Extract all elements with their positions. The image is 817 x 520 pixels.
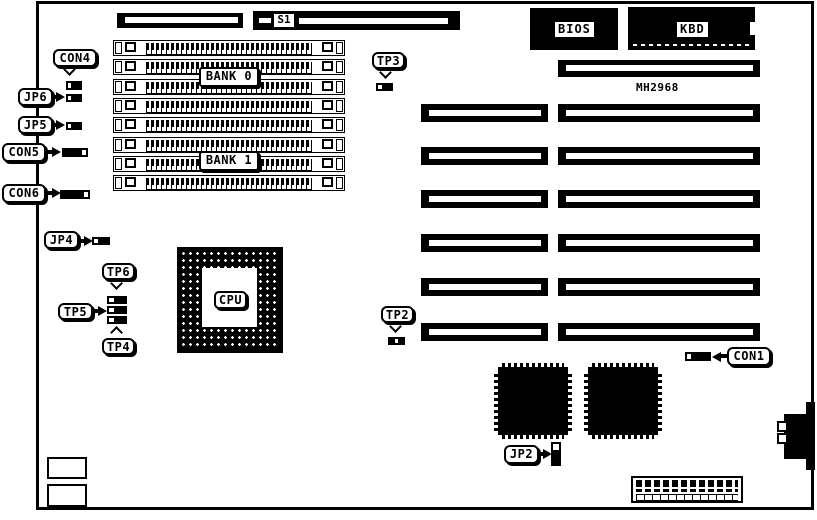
callout-con1: CON1 <box>727 347 771 366</box>
tp5-jumper <box>107 306 127 314</box>
expansion-slot <box>421 234 548 252</box>
jp2-jumper <box>551 442 561 466</box>
qfp-chip <box>588 367 658 435</box>
expansion-slot <box>558 323 760 341</box>
expansion-slot <box>558 278 760 296</box>
callout-jp4: JP4 <box>44 231 79 249</box>
power-connector <box>631 476 743 503</box>
expansion-slot <box>421 104 548 122</box>
board-outline <box>36 1 814 510</box>
callout-tp3: TP3 <box>372 52 405 69</box>
simm-socket <box>113 98 345 114</box>
jp6-jumper <box>66 94 82 102</box>
callout-jp6: JP6 <box>18 88 53 106</box>
component-outline <box>47 457 87 479</box>
bios-chip: BIOS <box>530 8 618 50</box>
callout-tp4: TP4 <box>102 338 135 355</box>
cpu-socket: CPU <box>177 247 283 353</box>
expansion-slot <box>558 190 760 208</box>
tp2-jumper <box>388 337 405 345</box>
callout-con6: CON6 <box>2 184 46 203</box>
expansion-slot <box>421 323 548 341</box>
edge-slot-bar <box>117 13 243 28</box>
simm-socket <box>113 40 345 56</box>
simm-socket <box>113 175 345 191</box>
din-connector-hole <box>777 421 788 432</box>
s1-switch-bar: S1 <box>253 11 460 30</box>
expansion-slot <box>421 278 548 296</box>
con1-header <box>685 352 711 361</box>
expansion-slot <box>421 147 548 165</box>
bios-chip-label: BIOS <box>555 22 594 37</box>
callout-jp5: JP5 <box>18 116 53 134</box>
con4-header <box>66 81 82 90</box>
pointer-icon <box>56 92 65 102</box>
board-model-text: MH2968 <box>636 81 679 94</box>
callout-tp2: TP2 <box>381 306 414 323</box>
tp3-jumper <box>376 83 393 91</box>
expansion-slot <box>558 60 760 77</box>
pointer-icon <box>52 147 61 157</box>
s1-label: S1 <box>273 13 295 28</box>
expansion-slot <box>558 104 760 122</box>
tp6-jumper <box>107 296 127 304</box>
pointer-icon <box>543 449 552 459</box>
kbd-chip-pins <box>633 44 750 46</box>
simm-socket <box>113 117 345 133</box>
pointer-icon <box>98 306 107 316</box>
callout-jp2: JP2 <box>504 445 539 464</box>
expansion-slot <box>558 147 760 165</box>
bank1-label: BANK 1 <box>199 151 259 171</box>
tp4-jumper <box>107 316 127 324</box>
callout-tp5: TP5 <box>58 303 93 320</box>
kbd-chip-notch <box>750 22 755 35</box>
motherboard-diagram: S1 BANK 0 BANK 1 BIOS KBD MH2968 CON4 JP… <box>0 0 817 520</box>
callout-con5: CON5 <box>2 143 46 162</box>
pointer-icon <box>52 188 61 198</box>
pointer-icon <box>84 236 93 246</box>
bank0-label: BANK 0 <box>199 67 259 87</box>
expansion-slot <box>558 234 760 252</box>
kbd-chip: KBD <box>628 7 755 50</box>
pointer-icon <box>56 120 65 130</box>
kbd-chip-label: KBD <box>677 22 708 37</box>
pointer-icon <box>712 352 721 362</box>
callout-tp6: TP6 <box>102 263 135 280</box>
con5-header <box>62 148 88 157</box>
cpu-label: CPU <box>214 291 247 309</box>
component-outline <box>47 484 87 507</box>
keyboard-din-connector-mount <box>806 402 815 470</box>
din-connector-hole <box>777 433 788 444</box>
jp4-jumper <box>92 237 110 245</box>
callout-con4: CON4 <box>53 49 97 67</box>
jp5-jumper <box>66 122 82 130</box>
con6-header <box>60 190 90 199</box>
expansion-slot <box>421 190 548 208</box>
qfp-chip <box>498 367 568 435</box>
